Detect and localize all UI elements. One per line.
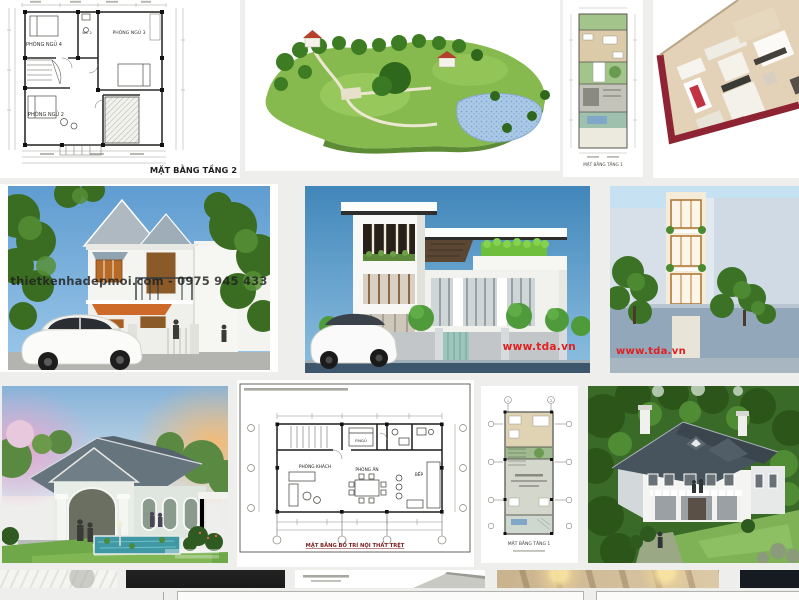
tube-house-illustration: [610, 186, 799, 373]
garden-masterplan-illustration: [245, 0, 560, 171]
watermark-tda-villa: www.tda.vn: [503, 341, 576, 353]
caption-interior-floor-plan: MẶT BẰNG BỐ TRÍ NỘI THẤT TRỆT: [306, 541, 405, 549]
aerial-villa-illustration: [588, 386, 799, 563]
narrow-plan-top-drawing: MẶT BẰNG TẦNG 1: [563, 0, 643, 177]
result-partial-ceiling-image[interactable]: [497, 570, 719, 588]
grid-bubble-2: 2: [550, 399, 552, 403]
villa-pool-illustration: [2, 386, 228, 563]
result-aerial-villa-render[interactable]: [588, 386, 799, 563]
caption-floorplan-tang2: MẶT BẰNG TẦNG 2: [150, 163, 237, 175]
result-partial-logo-image[interactable]: [295, 570, 485, 588]
grid-bubble-1: 1: [507, 399, 509, 403]
caption-narrow-plan-top: MẶT BẰNG TẦNG 1: [583, 162, 623, 167]
room-label-bedroom2: PHÒNG NGỦ 2: [28, 110, 64, 118]
result-interior-floor-plan[interactable]: PHÒNG KHÁCH PHÒNG ĂN BẾP P.NGỦ MẶT BẰNG …: [237, 380, 474, 567]
result-partial-dark-image[interactable]: [126, 570, 285, 588]
result-floorplan-tang2[interactable]: PHÒNG NGỦ 4 WC 2 PHÒNG NGỦ 3 PHÒNG NGỦ 2…: [0, 0, 240, 178]
result-narrow-plan-bottom[interactable]: 1 2: [481, 386, 578, 563]
room-label-wc: WC 2: [82, 31, 92, 35]
house-street-photo: thietkenhadepmoi.com - 0975 945 433: [8, 186, 270, 370]
result-house-street-render[interactable]: thietkenhadepmoi.com - 0975 945 433: [0, 184, 278, 372]
floorplan-tang2-drawing: PHÒNG NGỦ 4 WC 2 PHÒNG NGỦ 3 PHÒNG NGỦ 2…: [0, 0, 240, 178]
watermark-thietkenhadepmoi: thietkenhadepmoi.com - 0975 945 433: [8, 274, 270, 288]
result-partial-dark-image-2[interactable]: [740, 570, 799, 588]
room-label-bedroom4: PHÒNG NGỦ 4: [26, 40, 62, 48]
result-narrow-plan-top[interactable]: MẶT BẰNG TẦNG 1: [563, 0, 643, 177]
partial-logo-graphics: [295, 570, 485, 588]
bathroom-hatch: [105, 97, 139, 143]
caption-narrow-plan-bottom: MẶT BẰNG TẦNG 1: [508, 539, 551, 547]
room-label-living: PHÒNG KHÁCH: [299, 463, 331, 470]
result-apartment-cutaway[interactable]: [653, 0, 799, 178]
narrow-plan-bottom-drawing: 1 2: [481, 386, 578, 563]
room-label-bedroom: P.NGỦ: [355, 438, 367, 443]
result-villa-pool-render[interactable]: [2, 386, 228, 563]
room-label-kitchen: BẾP: [415, 470, 424, 478]
result-partial-interior-sketch[interactable]: [0, 570, 117, 588]
result-tube-house-render[interactable]: www.tda.vn: [610, 186, 799, 373]
apartment-cutaway-illustration: [653, 0, 799, 178]
watermark-tda-tubehouse: www.tda.vn: [616, 346, 686, 357]
room-label-bedroom3: PHÒNG NGỦ 3: [112, 28, 145, 36]
next-row-card[interactable]: [177, 591, 584, 600]
result-garden-masterplan[interactable]: [245, 0, 560, 171]
result-modern-villa-render[interactable]: www.tda.vn: [305, 186, 590, 373]
interior-floor-plan-drawing: PHÒNG KHÁCH PHÒNG ĂN BẾP P.NGỦ MẶT BẰNG …: [237, 380, 474, 567]
next-row-card-edge: [163, 592, 164, 600]
image-results-grid: PHÒNG NGỦ 4 WC 2 PHÒNG NGỦ 3 PHÒNG NGỦ 2…: [0, 0, 799, 600]
room-label-dining: PHÒNG ĂN: [355, 466, 378, 473]
next-row-card-2[interactable]: [596, 591, 799, 600]
